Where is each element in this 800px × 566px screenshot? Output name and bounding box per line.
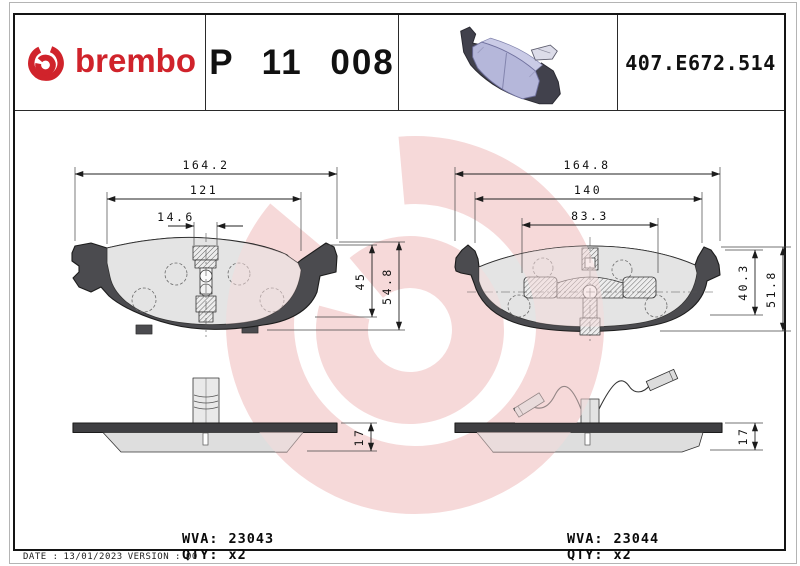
brand-wordmark: brembo [75, 44, 196, 77]
right-qty-value: x2 [614, 547, 632, 563]
footer-revision-line: DATE :13/01/2023VERSION :00 [23, 552, 203, 562]
dim-right-thickness: 17 [736, 427, 750, 446]
date-label: DATE : [23, 552, 59, 562]
brembo-roundel-icon [24, 40, 68, 86]
dim-right-overall-height: 51.8 [764, 270, 778, 308]
right-pad-part-info: WVA:23044 QTY:x2 [567, 531, 659, 563]
version-value: 00 [186, 552, 198, 562]
dim-left-pad-width: 121 [190, 183, 218, 197]
technical-drawing-area: 164.2 121 14.6 45 54.8 [30, 126, 799, 564]
dim-right-inner-width: 83.3 [571, 209, 609, 223]
part-number: P 11 008 [209, 43, 395, 83]
left-side-backplate [73, 423, 337, 433]
dim-left-overall-width: 164.2 [182, 158, 229, 172]
svg-text:QTY:x2: QTY:x2 [567, 547, 632, 563]
date-value: 13/01/2023 [64, 552, 123, 562]
brake-pad-photo [399, 15, 617, 110]
right-wva-number: 23044 [614, 531, 660, 547]
right-wva-label: WVA: [567, 531, 604, 547]
dim-left-clip-width: 14.6 [157, 210, 195, 224]
brembo-logo: brembo [24, 40, 196, 86]
brand-cell: brembo [15, 15, 205, 110]
reference-cell: 407.E672.514 [617, 15, 783, 110]
dim-left-overall-height: 54.8 [380, 267, 394, 305]
left-side-clip-tower [193, 378, 219, 423]
version-label: VERSION : [128, 552, 181, 562]
pad-photo-clip [531, 45, 557, 60]
part-number-cell: P 11 008 [205, 15, 398, 110]
right-qty-label: QTY: [567, 547, 604, 563]
svg-text:WVA:23043: WVA:23043 [182, 531, 274, 547]
svg-text:WVA:23044: WVA:23044 [567, 531, 659, 547]
title-block-header: brembo P 11 008 407.E672 [15, 15, 784, 111]
reference-code: 407.E672.514 [625, 51, 776, 75]
left-wva-label: WVA: [182, 531, 219, 547]
left-wva-number: 23043 [229, 531, 275, 547]
dim-right-pad-height: 40.3 [736, 263, 750, 301]
left-qty-value: x2 [229, 547, 247, 563]
datasheet-page: brembo P 11 008 407.E672 [0, 0, 800, 566]
datasheet-main-box: brembo P 11 008 407.E672 [13, 13, 786, 551]
right-side-backplate [455, 423, 722, 433]
product-image-cell [398, 15, 617, 110]
dim-left-pad-height: 45 [353, 272, 367, 291]
dim-left-thickness: 17 [352, 428, 366, 447]
dim-right-pad-width: 140 [574, 183, 602, 197]
dim-right-overall-width: 164.8 [563, 158, 610, 172]
